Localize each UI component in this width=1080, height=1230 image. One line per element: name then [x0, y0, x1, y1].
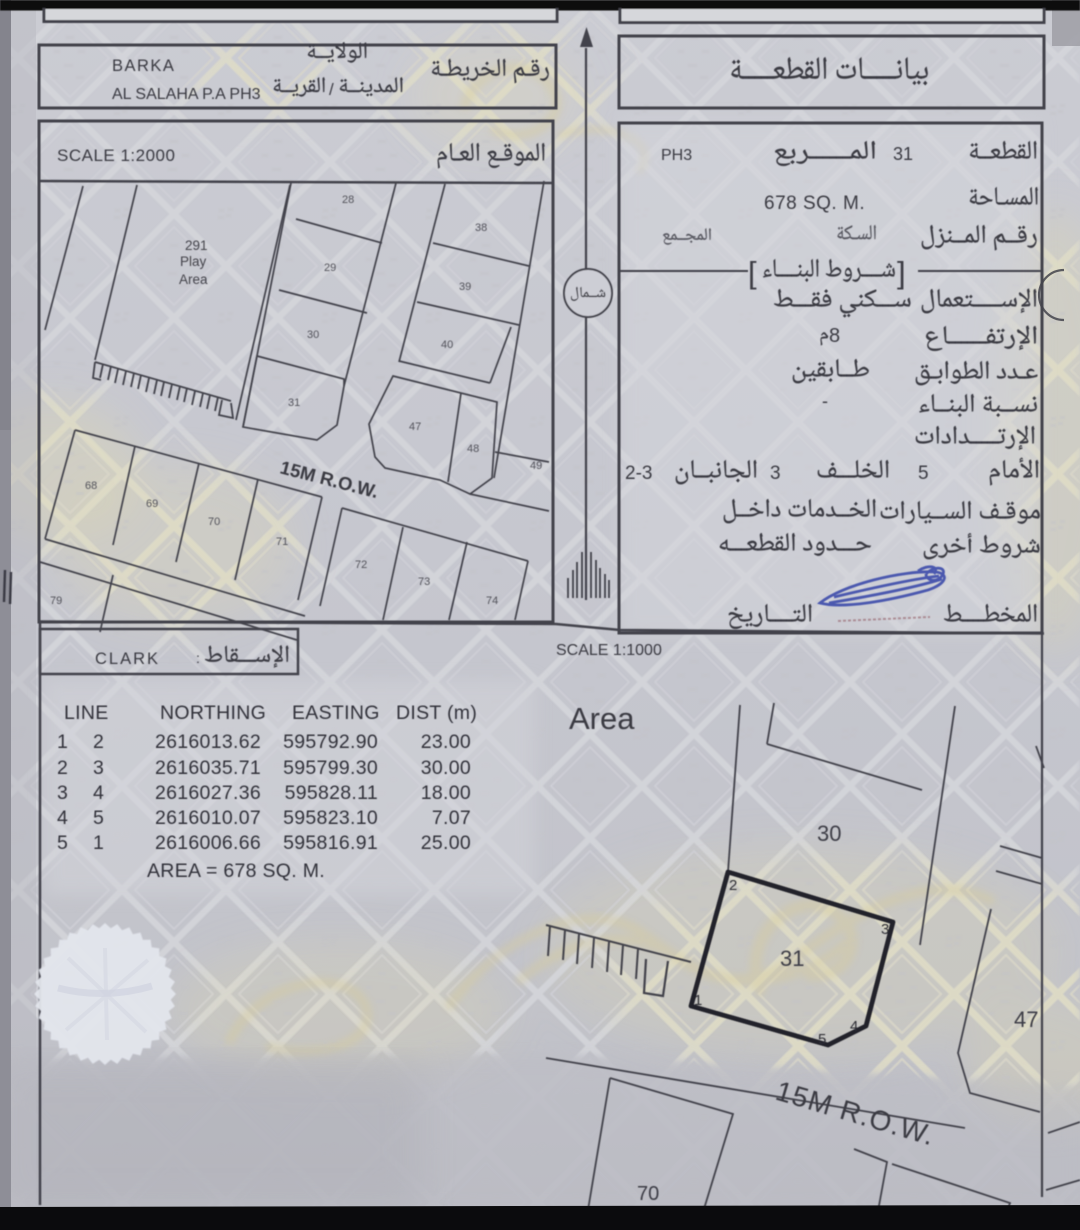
svg-text:BARKA: BARKA — [112, 57, 175, 75]
svg-text:3: 3 — [57, 782, 68, 804]
svg-text:73: 73 — [418, 576, 430, 588]
svg-text:39: 39 — [459, 281, 471, 293]
svg-text:2616035.71: 2616035.71 — [155, 757, 261, 779]
svg-text:74: 74 — [486, 595, 498, 607]
svg-text:678 SQ. M.: 678 SQ. M. — [764, 193, 865, 214]
svg-text:-: - — [822, 391, 828, 411]
svg-text:25.00: 25.00 — [421, 832, 471, 854]
svg-text:/: / — [329, 80, 334, 99]
svg-text:EASTING: EASTING — [292, 702, 380, 724]
svg-text:2616013.62: 2616013.62 — [155, 731, 261, 753]
svg-text:PH3: PH3 — [661, 147, 692, 164]
svg-text:SCALE 1:2000: SCALE 1:2000 — [57, 146, 175, 165]
svg-text:47: 47 — [1014, 1007, 1038, 1032]
svg-text:]: ] — [897, 255, 906, 290]
svg-text:[: [ — [748, 255, 757, 290]
svg-text:70: 70 — [637, 1183, 659, 1205]
svg-text:4: 4 — [93, 782, 104, 804]
svg-text:Area: Area — [569, 701, 635, 736]
svg-text:AL SALAHA P.A PH3: AL SALAHA P.A PH3 — [112, 86, 261, 103]
svg-text:2-3: 2-3 — [625, 463, 652, 484]
svg-text:Area: Area — [179, 272, 208, 287]
svg-text:595828.11: 595828.11 — [285, 782, 378, 804]
svg-text:8: 8 — [829, 325, 840, 347]
svg-text:1: 1 — [93, 832, 104, 854]
svg-text:AREA = 678 SQ. M.: AREA = 678 SQ. M. — [147, 860, 325, 882]
svg-text:2616010.07: 2616010.07 — [155, 807, 261, 829]
svg-text:LINE: LINE — [64, 702, 109, 724]
svg-text:31: 31 — [288, 397, 300, 409]
svg-text:30: 30 — [307, 329, 319, 341]
svg-text:4: 4 — [57, 807, 68, 829]
svg-text:595799.30: 595799.30 — [283, 757, 378, 779]
svg-text:595816.91: 595816.91 — [283, 832, 378, 854]
svg-text:595792.90: 595792.90 — [283, 731, 378, 753]
svg-text:5: 5 — [57, 832, 68, 854]
svg-text::: : — [196, 650, 200, 666]
svg-text:18.00: 18.00 — [421, 782, 471, 804]
svg-text:2: 2 — [57, 757, 68, 779]
svg-text:31: 31 — [780, 946, 804, 971]
svg-text:5: 5 — [818, 1031, 826, 1048]
svg-text:5: 5 — [918, 463, 929, 484]
svg-text:30.00: 30.00 — [421, 757, 471, 779]
svg-text:1: 1 — [57, 731, 68, 753]
svg-text:23.00: 23.00 — [421, 731, 471, 753]
svg-text:7.07: 7.07 — [432, 807, 471, 829]
svg-text:2616027.36: 2616027.36 — [155, 782, 261, 804]
svg-text:29: 29 — [324, 262, 336, 274]
svg-text:40: 40 — [441, 339, 453, 351]
svg-text:69: 69 — [146, 498, 158, 510]
svg-text:5: 5 — [93, 807, 104, 829]
svg-text:1: 1 — [694, 992, 702, 1009]
svg-text:NORTHING: NORTHING — [160, 702, 266, 724]
svg-text:291: 291 — [185, 238, 208, 253]
svg-text:30: 30 — [817, 821, 841, 846]
svg-text:3: 3 — [881, 921, 889, 938]
svg-text:48: 48 — [467, 443, 479, 455]
svg-text:47: 47 — [409, 421, 421, 433]
svg-text:SCALE 1:1000: SCALE 1:1000 — [556, 642, 662, 659]
svg-text:4: 4 — [850, 1018, 858, 1035]
svg-text:31: 31 — [893, 144, 913, 164]
svg-text:DIST (m): DIST (m) — [396, 702, 477, 724]
svg-text:49: 49 — [530, 460, 542, 472]
svg-text:79: 79 — [50, 595, 62, 607]
svg-text:68: 68 — [85, 480, 97, 492]
svg-text:3: 3 — [770, 463, 781, 484]
svg-text:71: 71 — [276, 536, 288, 548]
svg-text:72: 72 — [355, 559, 367, 571]
svg-text:595823.10: 595823.10 — [283, 807, 378, 829]
svg-text:3: 3 — [93, 757, 104, 779]
svg-text:2: 2 — [729, 877, 737, 894]
svg-text:CLARK: CLARK — [95, 650, 160, 668]
svg-text:Play: Play — [180, 254, 207, 269]
svg-text:28: 28 — [342, 194, 354, 206]
svg-text:2: 2 — [93, 731, 104, 753]
svg-text:70: 70 — [208, 516, 220, 528]
svg-text:2616006.66: 2616006.66 — [155, 832, 261, 854]
svg-text:38: 38 — [475, 222, 487, 234]
